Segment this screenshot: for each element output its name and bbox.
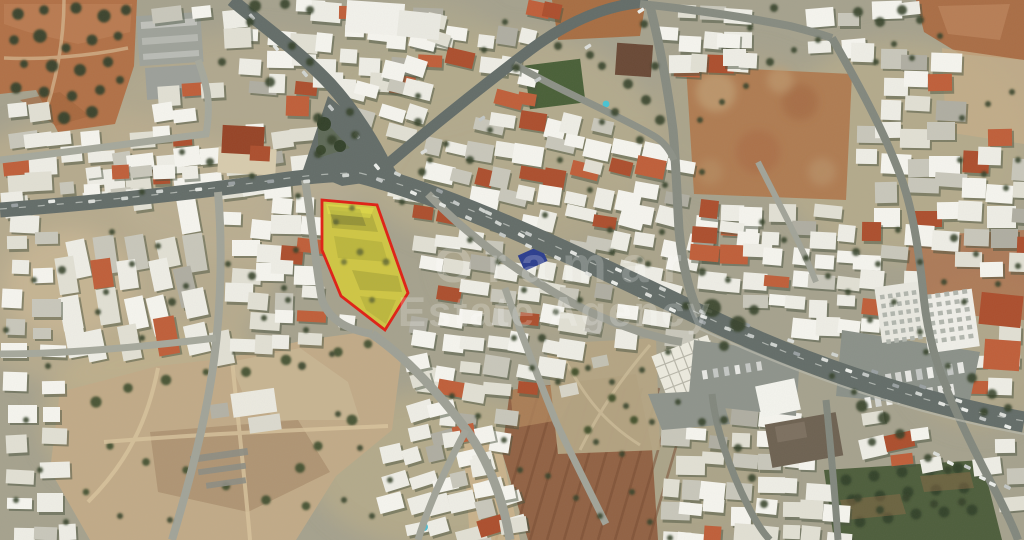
svg-text:Estate Agency: Estate Agency bbox=[398, 288, 712, 335]
svg-text:Oramar: Oramar bbox=[434, 237, 696, 293]
